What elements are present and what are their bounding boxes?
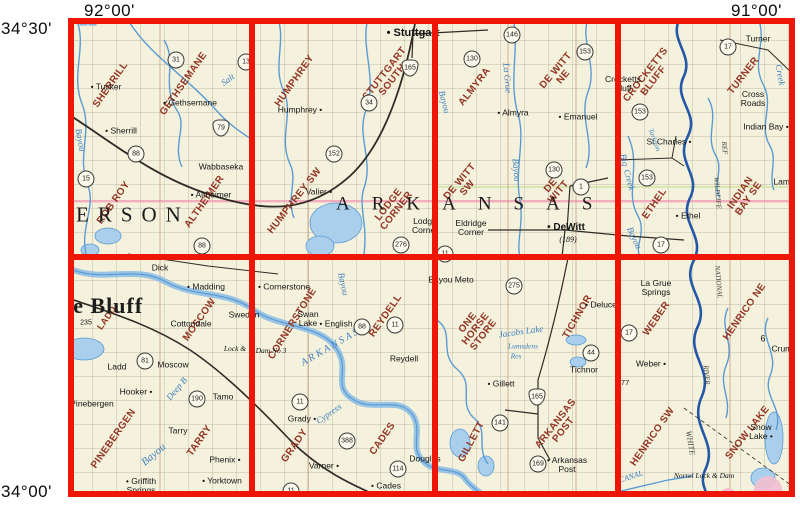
latitude-label-south: 34°00': [1, 482, 52, 502]
quad-index-map-page: 92°00' 91°00' 34°30' 34°00': [0, 0, 800, 511]
map-cell-r0c2[interactable]: [438, 24, 615, 254]
latitude-label-north: 34°30': [1, 19, 52, 39]
map-cell-r0c3[interactable]: [621, 24, 789, 254]
map-cell-r1c3[interactable]: [621, 260, 789, 491]
map-cell-r1c1[interactable]: [255, 260, 432, 491]
topo-map-area: SHERRILLGETHSEMANEROB ROYALTHEIMERHUMPHR…: [68, 18, 795, 497]
map-cell-r1c2[interactable]: [438, 260, 615, 491]
map-cell-r0c0[interactable]: [74, 24, 249, 254]
map-cell-r1c0[interactable]: [74, 260, 249, 491]
map-cell-r0c1[interactable]: [255, 24, 432, 254]
